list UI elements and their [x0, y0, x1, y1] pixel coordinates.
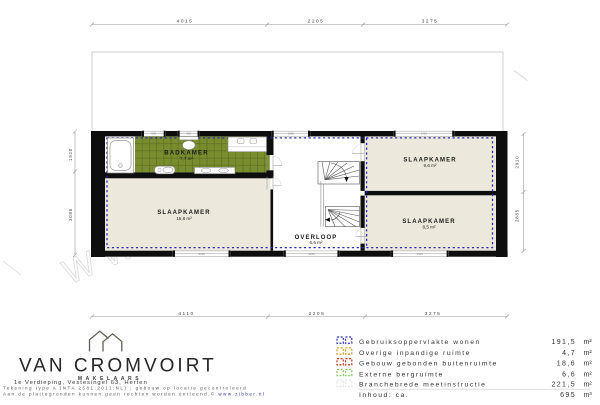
svg-text:m²: m²: [584, 381, 593, 388]
svg-text:18,6: 18,6: [557, 361, 576, 368]
svg-text:221,5: 221,5: [551, 381, 576, 388]
svg-text:m³: m³: [584, 392, 593, 399]
svg-text:Tekening type A (NTA 2581:2011: Tekening type A (NTA 2581:2011:NL) ; geb…: [3, 385, 247, 390]
svg-text:2265: 2265: [308, 252, 315, 256]
svg-text:Gebouw gebonden buitenruimte: Gebouw gebonden buitenruimte: [359, 361, 498, 368]
svg-text:6,6: 6,6: [562, 371, 576, 378]
svg-text:9,6 m²: 9,6 m²: [423, 163, 436, 168]
svg-text:2205: 2205: [308, 18, 325, 24]
svg-text:2205: 2205: [309, 311, 326, 317]
svg-text:2885: 2885: [514, 209, 519, 222]
svg-text:Inhoud: ca.: Inhoud: ca.: [359, 392, 409, 399]
svg-text:900: 900: [186, 132, 191, 136]
svg-text:1920: 1920: [68, 148, 73, 161]
svg-text:900: 900: [151, 132, 156, 136]
svg-text:Externe bergruimte: Externe bergruimte: [359, 371, 444, 378]
svg-text:3085: 3085: [68, 208, 73, 221]
svg-text:1565: 1565: [288, 132, 295, 136]
svg-text:695: 695: [560, 392, 576, 399]
svg-text:4110: 4110: [178, 311, 194, 317]
svg-text:m²: m²: [584, 371, 593, 378]
svg-text:Branchebrede meetinstructie: Branchebrede meetinstructie: [359, 381, 486, 388]
svg-text:Overige inpandige ruimte: Overige inpandige ruimte: [359, 350, 471, 357]
svg-text:191,5: 191,5: [551, 339, 576, 346]
svg-text:m²: m²: [584, 350, 593, 357]
svg-text:15,8 m²: 15,8 m²: [176, 216, 192, 221]
svg-text:7,7 m²: 7,7 m²: [180, 156, 193, 161]
svg-text:2462: 2462: [421, 132, 428, 136]
svg-text:m²: m²: [584, 361, 593, 368]
svg-text:2325: 2325: [417, 252, 424, 256]
svg-text:6,6 m²: 6,6 m²: [309, 240, 322, 245]
svg-text:8,5 m²: 8,5 m²: [422, 225, 435, 230]
svg-text:VAN CROMVOIRT: VAN CROMVOIRT: [19, 356, 217, 377]
svg-text:2910: 2910: [514, 156, 519, 169]
svg-text:3275: 3275: [425, 311, 442, 317]
svg-text:Aan de plattegronden kunnen ge: Aan de plattegronden kunnen geen rechten…: [3, 391, 265, 397]
svg-text:2325: 2325: [199, 252, 206, 256]
svg-text:3275: 3275: [422, 18, 439, 24]
svg-text:4015: 4015: [177, 18, 194, 24]
svg-text:4,7: 4,7: [562, 350, 576, 357]
svg-text:Gebruiksoppervlakte wonen: Gebruiksoppervlakte wonen: [359, 339, 481, 346]
svg-text:m²: m²: [584, 339, 593, 346]
